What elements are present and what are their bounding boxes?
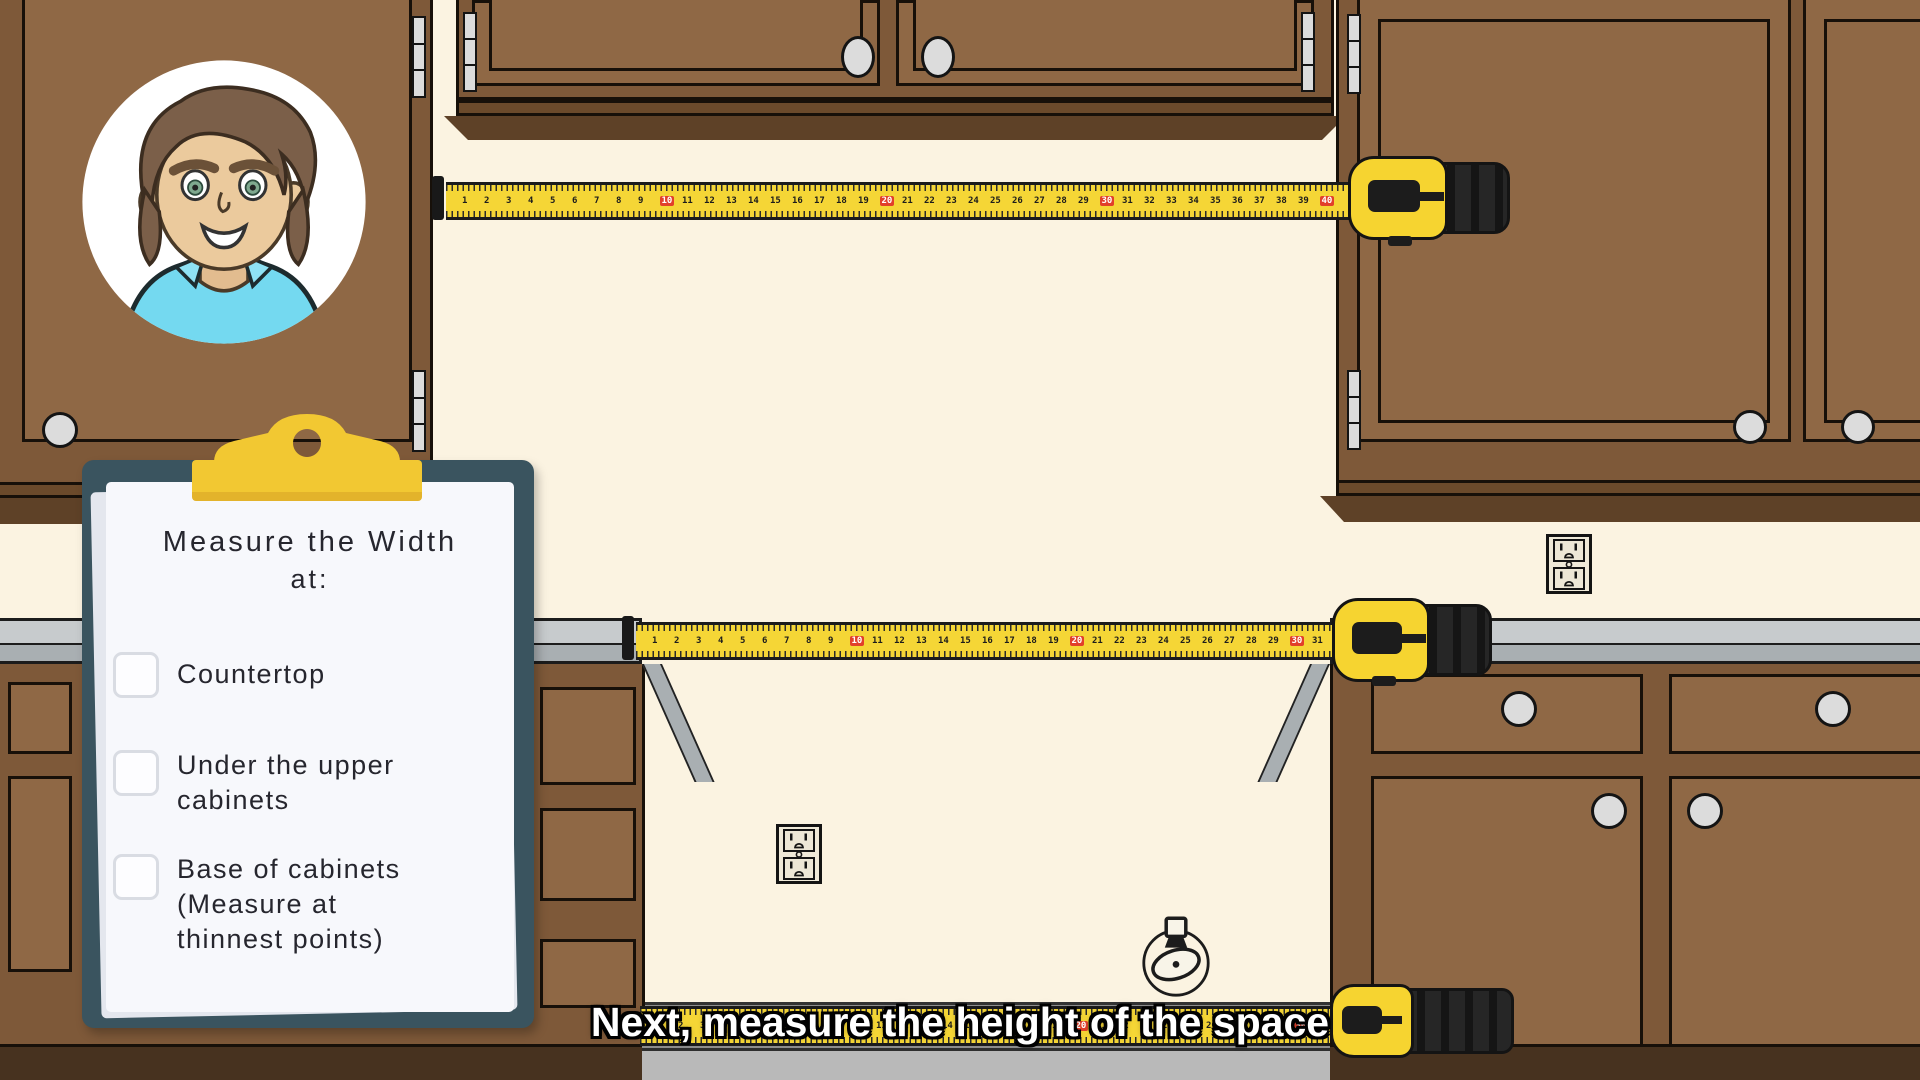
checklist-item: Under the upper cabinets — [113, 750, 506, 818]
door-knob — [1591, 793, 1627, 829]
countertop-end-panel — [1257, 664, 1330, 782]
caption-text: Next, measure the height of the space — [591, 999, 1329, 1045]
tape-ruler: 1234567891011121314151617181920212223242… — [446, 182, 1352, 220]
door-panel — [489, 0, 863, 71]
tape-hook — [622, 616, 634, 660]
checklist-item-label: Countertop — [177, 657, 326, 692]
checkbox — [113, 652, 159, 698]
cabinet-door — [540, 939, 636, 1008]
door-knob — [42, 412, 78, 448]
checkbox — [113, 854, 159, 900]
checkbox — [113, 750, 159, 796]
door-knob — [1733, 410, 1767, 444]
door-knob — [921, 36, 955, 78]
cabinet-hinge-icon — [1347, 14, 1361, 94]
cabinet-door — [540, 687, 636, 785]
drawer-front — [8, 682, 72, 754]
drawer-front — [1669, 674, 1920, 754]
cabinet-door — [8, 776, 72, 972]
checklist-title-line1: Measure the Width — [106, 526, 514, 559]
door-panel — [1824, 19, 1920, 423]
caption-bar: Next, measure the height of the space — [0, 999, 1920, 1046]
upper-center-cabinet-molding — [444, 116, 1346, 140]
clipboard-clip — [206, 408, 408, 480]
tape-lock-stem — [1400, 634, 1426, 643]
drawer-knob — [1815, 691, 1851, 727]
tape-reel-icon — [1134, 912, 1218, 1000]
door-knob — [1687, 793, 1723, 829]
tape-lock-stem — [1418, 192, 1444, 201]
cabinet-hinge-icon — [1301, 12, 1315, 92]
upper-right-cabinet-molding — [1320, 496, 1920, 522]
clipboard-paper: Measure the Width at: Countertop Under t… — [106, 482, 514, 1012]
countertop-end-panel — [642, 664, 715, 782]
cabinet-door — [1803, 0, 1920, 442]
checklist-item-label: Base of cabinets (Measure at thinnest po… — [177, 852, 429, 957]
lower-right-cabinet — [1330, 664, 1920, 1044]
cabinet-door — [472, 0, 880, 86]
power-outlet — [1546, 534, 1592, 594]
cabinet-door — [896, 0, 1314, 86]
kitchen-scene: 1234567891011121314151617181920212223242… — [0, 0, 1920, 1080]
upper-center-cabinet-trim — [456, 100, 1334, 116]
cabinet-hinge-icon — [412, 16, 426, 98]
checklist-item: Base of cabinets (Measure at thinnest po… — [113, 854, 506, 957]
checklist-item: Countertop — [113, 652, 506, 698]
checklist-item-label: Under the upper cabinets — [177, 748, 429, 818]
lower-left-toe-kick — [0, 1044, 642, 1080]
tape-hook — [432, 176, 444, 220]
tape-lock-tab — [1388, 236, 1412, 246]
drawer-knob — [1501, 691, 1537, 727]
door-panel — [913, 0, 1297, 71]
tape-lock-button — [1352, 622, 1402, 654]
presenter-avatar — [80, 58, 368, 346]
upper-right-cabinet-trim — [1336, 480, 1920, 496]
checklist-title-line2: at: — [106, 564, 514, 595]
power-outlet — [776, 824, 822, 884]
door-knob — [841, 36, 875, 78]
upper-right-cabinet — [1336, 0, 1920, 483]
tape-lock-button — [1368, 180, 1420, 212]
tape-ruler: 1234567891011121314151617181920212223242… — [636, 622, 1332, 660]
cabinet-door — [540, 808, 636, 901]
cabinet-hinge-icon — [463, 12, 477, 92]
tape-lock-tab — [1372, 676, 1396, 686]
cabinet-hinge-icon — [1347, 370, 1361, 450]
cabinet-hinge-icon — [412, 370, 426, 452]
door-knob — [1841, 410, 1875, 444]
upper-center-cabinet — [456, 0, 1334, 100]
